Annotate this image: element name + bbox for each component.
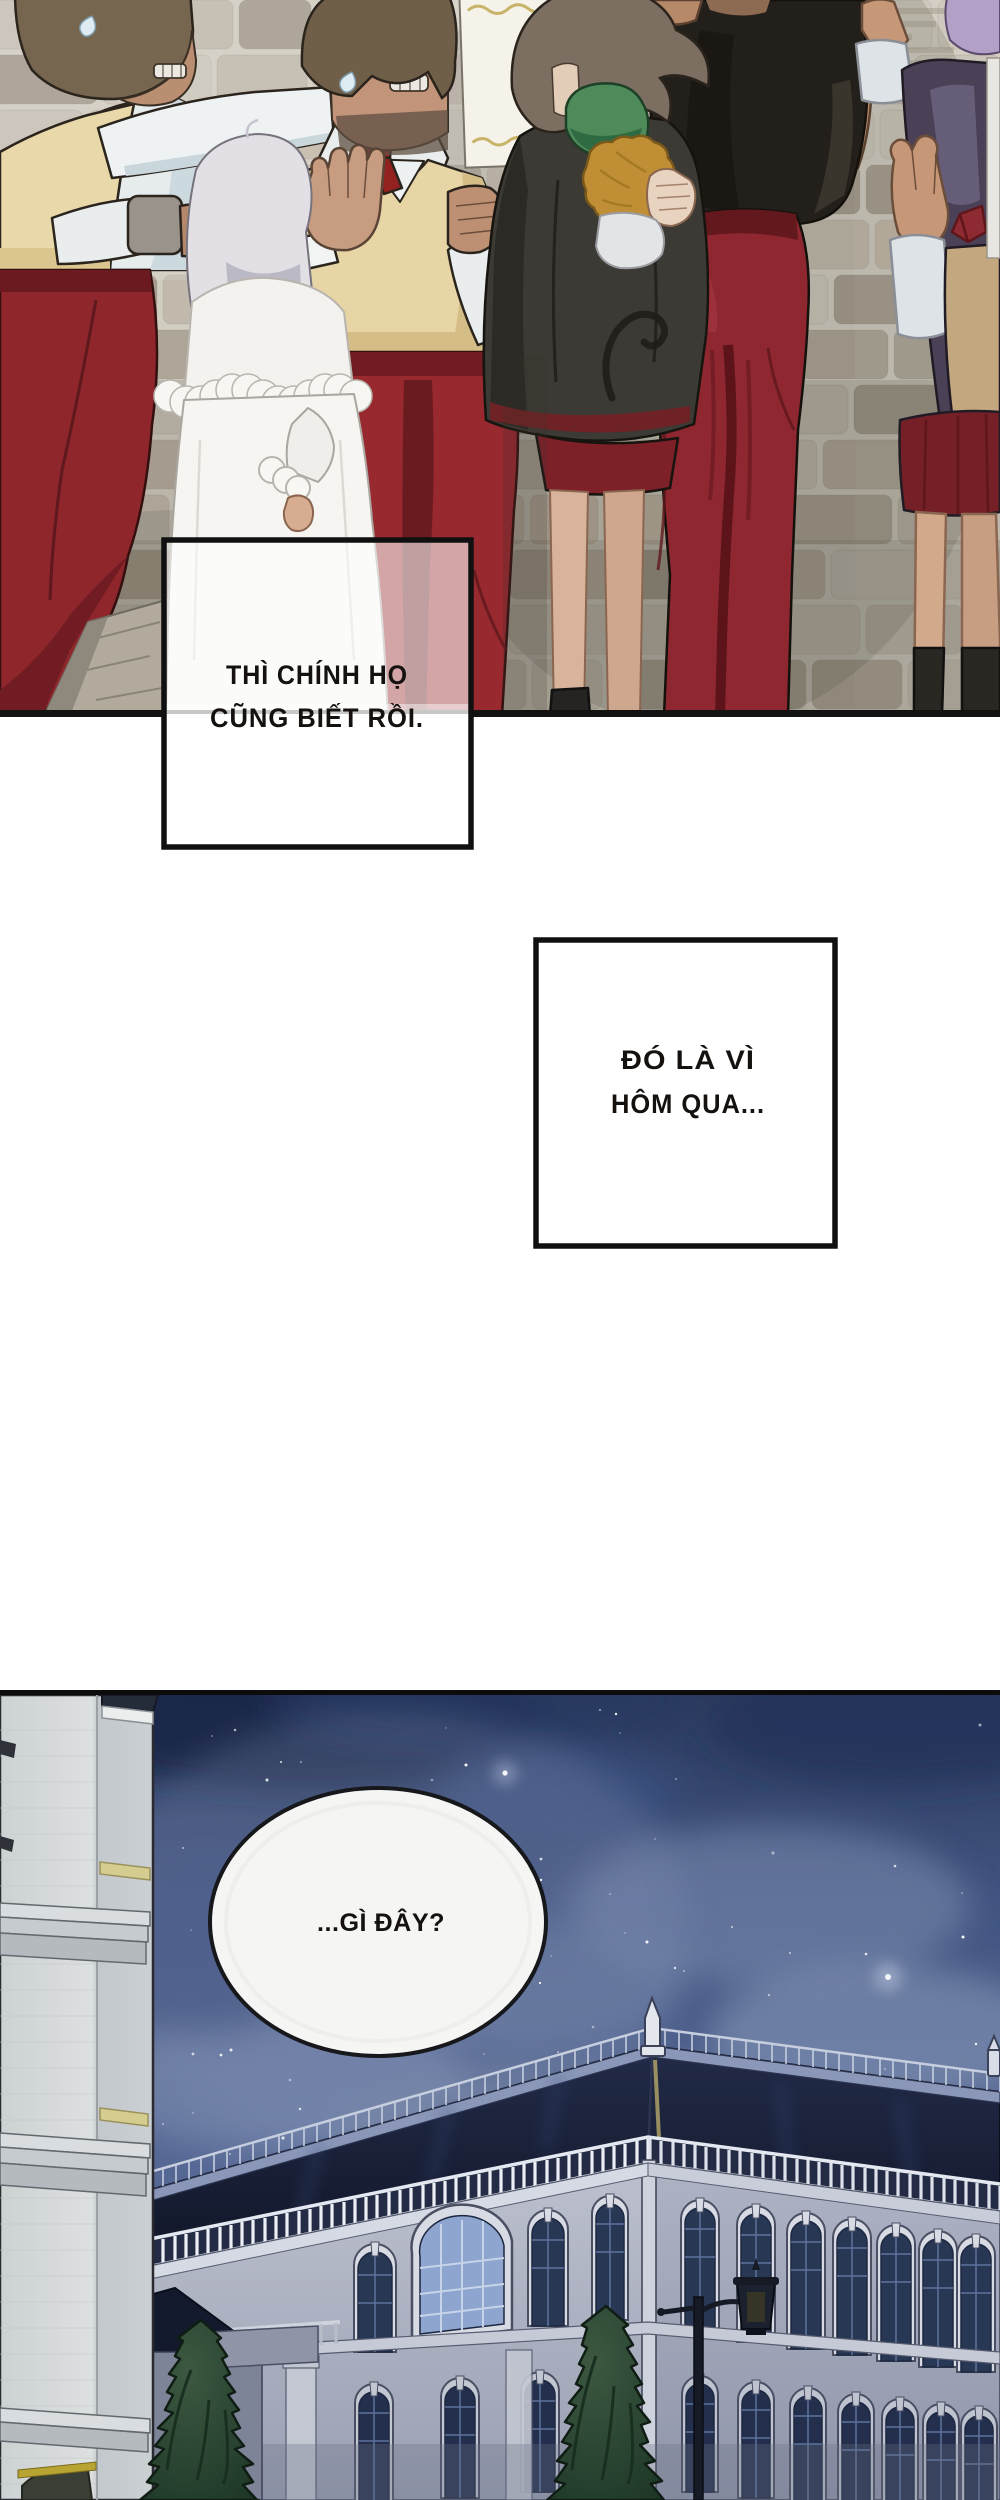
svg-text:THÌ CHÍNH HỌ: THÌ CHÍNH HỌ	[226, 659, 408, 690]
svg-text:CŨNG BIẾT RỒI.: CŨNG BIẾT RỒI.	[210, 702, 424, 733]
svg-text:...GÌ ĐÂY?: ...GÌ ĐÂY?	[317, 1907, 445, 1937]
svg-text:ĐÓ LÀ VÌ: ĐÓ LÀ VÌ	[621, 1044, 755, 1075]
svg-text:HÔM QUA...: HÔM QUA...	[611, 1088, 765, 1119]
